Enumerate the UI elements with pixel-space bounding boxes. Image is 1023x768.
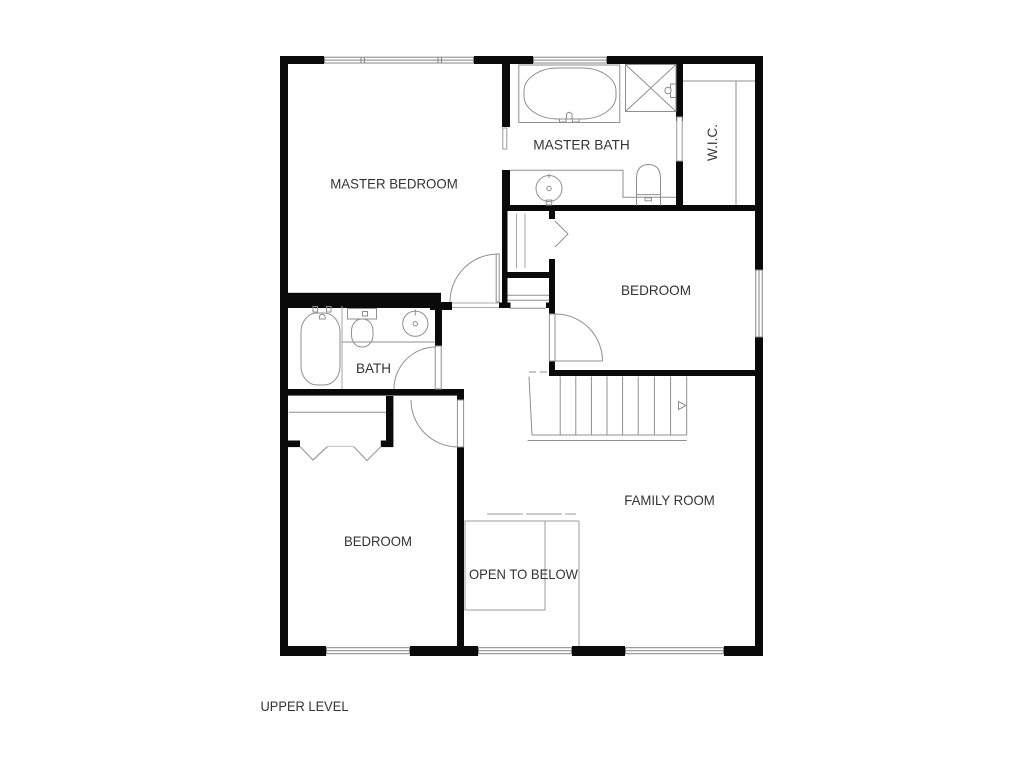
svg-text:FAMILY ROOM: FAMILY ROOM	[624, 492, 715, 508]
svg-text:MASTER BEDROOM: MASTER BEDROOM	[330, 175, 458, 191]
svg-text:BEDROOM: BEDROOM	[621, 282, 691, 298]
svg-text:BATH: BATH	[356, 360, 391, 376]
svg-text:W.I.C.: W.I.C.	[704, 124, 720, 161]
svg-text:OPEN TO BELOW: OPEN TO BELOW	[469, 566, 579, 582]
svg-text:UPPER LEVEL: UPPER LEVEL	[261, 698, 349, 714]
svg-text:MASTER BATH: MASTER BATH	[533, 136, 630, 152]
svg-text:BEDROOM: BEDROOM	[344, 533, 412, 549]
